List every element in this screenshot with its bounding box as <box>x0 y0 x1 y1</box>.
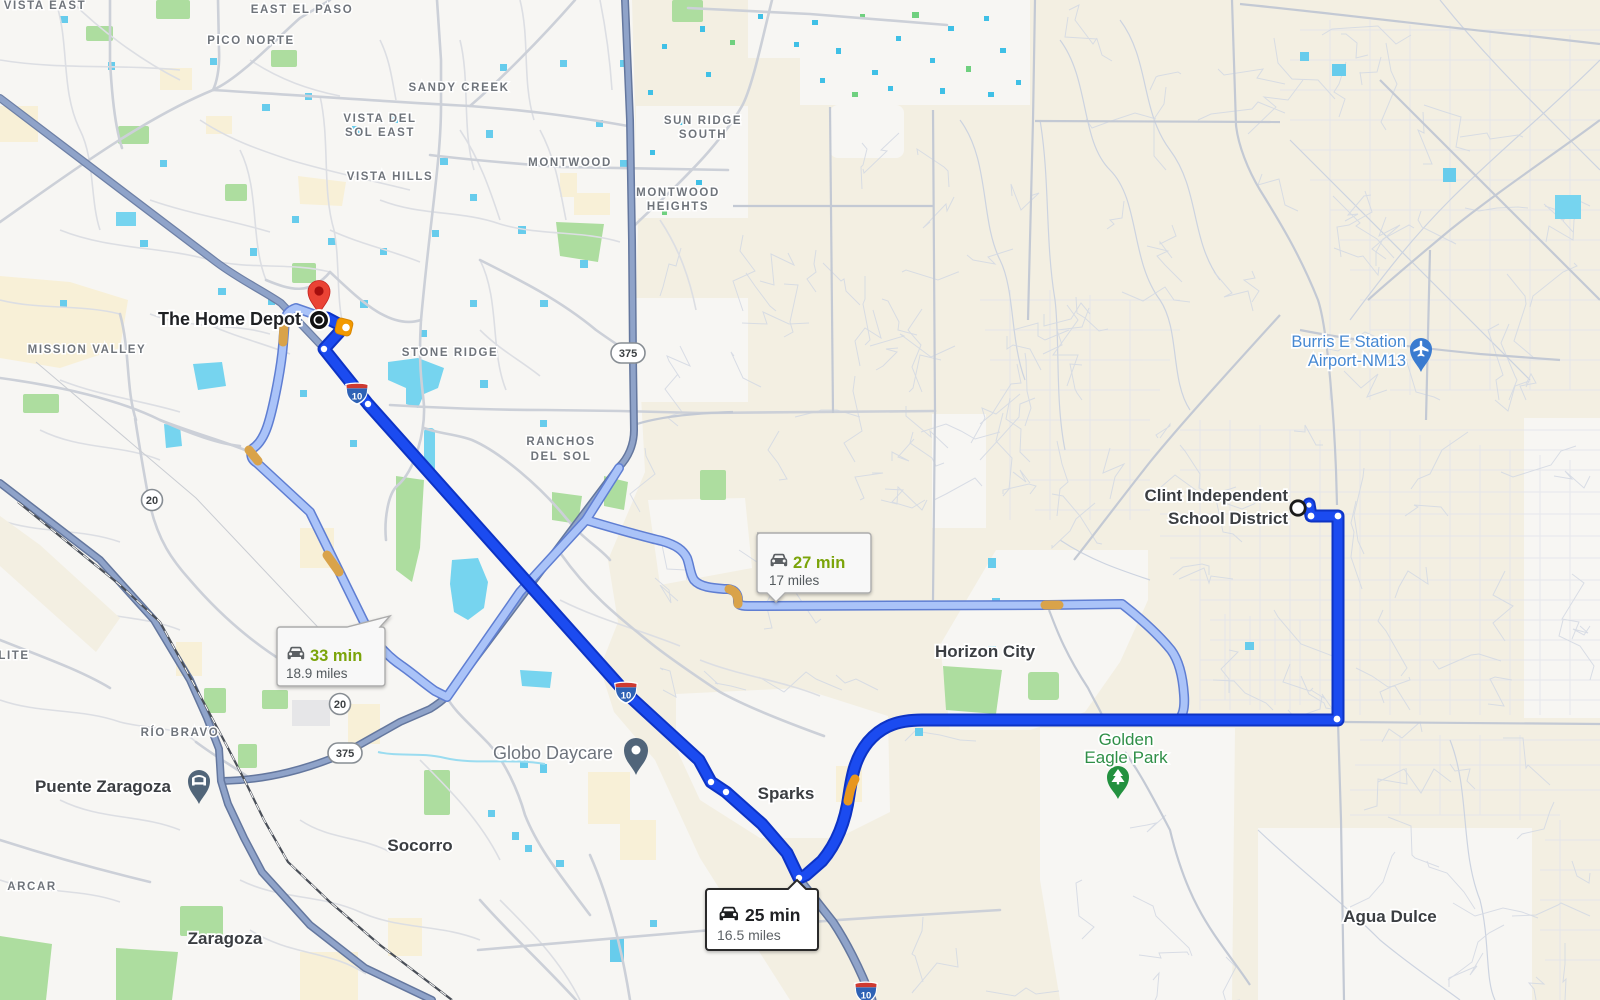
svg-text:HEIGHTS: HEIGHTS <box>647 201 709 213</box>
svg-text:SOL EAST: SOL EAST <box>345 127 415 139</box>
svg-text:Horizon City: Horizon City <box>935 642 1036 661</box>
svg-text:ARCAR: ARCAR <box>7 881 57 893</box>
svg-text:Globo Daycare: Globo Daycare <box>493 743 613 763</box>
svg-text:Puente Zaragoza: Puente Zaragoza <box>35 777 172 796</box>
svg-text:STONE RIDGE: STONE RIDGE <box>402 347 499 359</box>
svg-text:18.9 miles: 18.9 miles <box>286 666 348 681</box>
svg-text:MISSION VALLEY: MISSION VALLEY <box>28 344 147 356</box>
svg-text:Eagle Park: Eagle Park <box>1084 748 1168 767</box>
svg-text:17 miles: 17 miles <box>769 573 820 588</box>
svg-text:20: 20 <box>146 495 158 507</box>
svg-text:DEL SOL: DEL SOL <box>531 451 592 463</box>
svg-text:RANCHOS: RANCHOS <box>526 436 595 448</box>
svg-text:20: 20 <box>334 699 346 711</box>
svg-text:Socorro: Socorro <box>387 836 452 855</box>
svg-text:VISTA HILLS: VISTA HILLS <box>347 171 434 183</box>
svg-text:Burris E Station: Burris E Station <box>1291 333 1406 351</box>
svg-text:Agua Dulce: Agua Dulce <box>1343 907 1437 926</box>
svg-text:10: 10 <box>352 392 363 403</box>
svg-text:Sparks: Sparks <box>758 784 815 803</box>
svg-text:25 min: 25 min <box>745 905 800 925</box>
svg-text:MONTWOOD: MONTWOOD <box>636 187 720 199</box>
svg-text:375: 375 <box>336 748 354 760</box>
svg-text:Clint Independent: Clint Independent <box>1144 486 1288 505</box>
svg-text:The Home Depot: The Home Depot <box>158 309 301 329</box>
svg-text:PICO NORTE: PICO NORTE <box>207 35 295 47</box>
svg-text:16.5 miles: 16.5 miles <box>717 927 781 943</box>
svg-text:SOUTH: SOUTH <box>679 129 727 141</box>
svg-text:LITE: LITE <box>0 650 30 662</box>
svg-text:SUN RIDGE: SUN RIDGE <box>664 115 742 127</box>
svg-text:RÍO BRAVO: RÍO BRAVO <box>141 726 220 739</box>
svg-text:EAST EL PASO: EAST EL PASO <box>251 4 354 16</box>
svg-text:10: 10 <box>861 991 872 1000</box>
svg-text:Zaragoza: Zaragoza <box>188 929 263 948</box>
svg-text:MONTWOOD: MONTWOOD <box>528 157 612 169</box>
svg-text:10: 10 <box>621 691 632 702</box>
svg-text:33 min: 33 min <box>310 647 362 665</box>
svg-text:375: 375 <box>619 348 637 360</box>
svg-text:Golden: Golden <box>1099 730 1154 749</box>
svg-text:Airport-NM13: Airport-NM13 <box>1308 352 1406 370</box>
svg-text:School District: School District <box>1168 509 1288 528</box>
svg-text:27 min: 27 min <box>793 554 845 572</box>
svg-text:VISTA EAST: VISTA EAST <box>4 0 86 12</box>
svg-text:VISTA DEL: VISTA DEL <box>343 113 416 125</box>
svg-text:SANDY CREEK: SANDY CREEK <box>408 82 509 94</box>
